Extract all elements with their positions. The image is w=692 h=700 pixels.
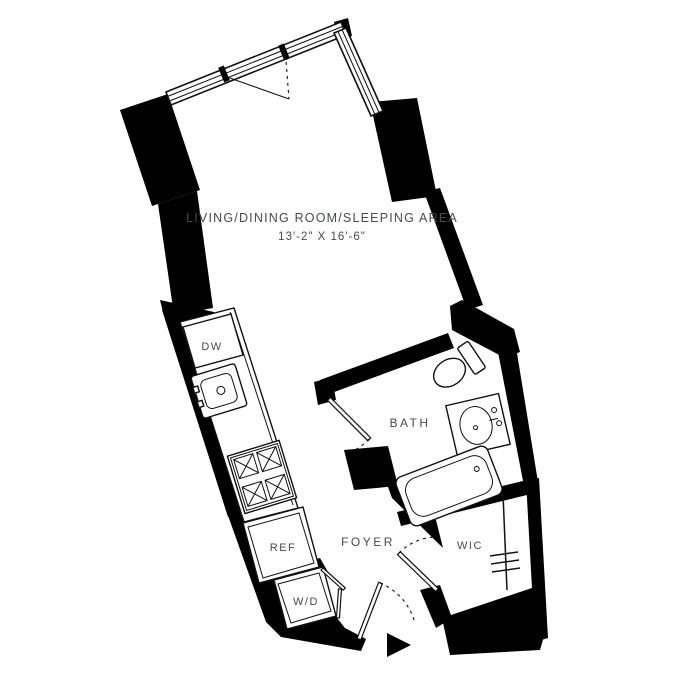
- washer-dryer-label: W/D: [293, 596, 319, 608]
- closet-rod-icon: [490, 494, 520, 590]
- casement-swing-line: [227, 77, 289, 99]
- wic-door-leaf: [397, 552, 438, 592]
- window-northeast-glazing-1: [342, 30, 379, 113]
- washer-dryer-door-leaf-2: [336, 589, 341, 618]
- bath-door-leaf: [328, 398, 371, 441]
- window-northeast: [334, 28, 383, 116]
- floor-plan: LIVING/DINING ROOM/SLEEPING AREA 13'-2" …: [0, 0, 692, 700]
- living-room-label: LIVING/DINING ROOM/SLEEPING AREA: [186, 211, 458, 225]
- foyer-label: FOYER: [341, 535, 395, 549]
- wall-wic-bottom: [442, 588, 544, 655]
- bath-label: BATH: [389, 416, 430, 430]
- bathtub-icon: [394, 444, 504, 528]
- wall-pier-top-left: [120, 94, 200, 206]
- wic-label: WIC: [457, 540, 483, 552]
- window-north-glazing-1: [168, 27, 343, 97]
- dishwasher-label: DW: [201, 341, 222, 353]
- entry-door-leaf: [357, 582, 382, 639]
- wall-bath-top: [320, 333, 454, 395]
- wall-right-window-block: [370, 98, 437, 202]
- window-northeast-glazing-2: [338, 32, 375, 115]
- refrigerator-label: REF: [270, 542, 297, 554]
- living-room-dimensions: 13'-2" X 16'-6": [278, 231, 366, 243]
- entry-arrow-icon: [387, 633, 411, 657]
- window-north-glazing-2: [170, 31, 345, 101]
- windows: [166, 22, 383, 116]
- wic-door-swing-arc: [399, 537, 437, 553]
- entry-door-swing-arc: [380, 583, 414, 620]
- wall-right-upper-band: [424, 188, 483, 310]
- kitchen: [180, 308, 345, 629]
- entry: [357, 582, 414, 657]
- wall-left-upper: [158, 191, 213, 315]
- window-north: [166, 22, 346, 105]
